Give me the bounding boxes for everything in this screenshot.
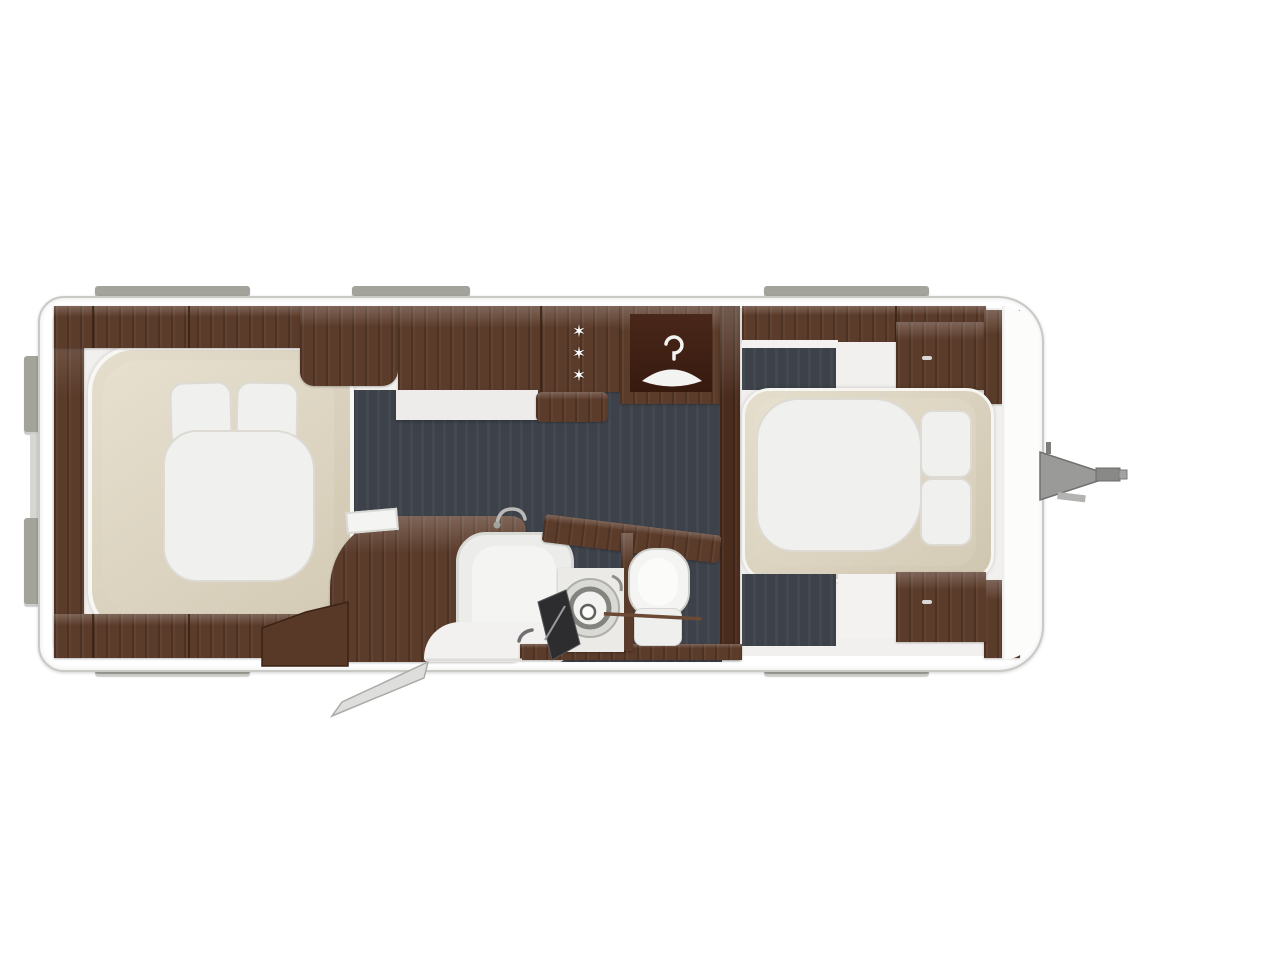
front-bed-pillow-top (920, 410, 972, 478)
cabinet-divider (188, 306, 190, 348)
toilet-base (634, 608, 682, 646)
kitchen-worktop-shelf (396, 390, 538, 420)
chest-handle (922, 356, 932, 360)
caravan-floor-plan: ✶ ✶ ✶ (0, 0, 1280, 960)
freezer-star-icon: ✶ (572, 322, 586, 342)
freezer-star-icon: ✶ (572, 344, 586, 364)
cabinet-divider (540, 306, 542, 392)
kitchen-sink-cover (345, 508, 399, 534)
front-floor-top (742, 348, 836, 390)
rear-bed-duvet (163, 430, 315, 582)
front-bed-duvet (756, 398, 922, 552)
toilet-lid (638, 558, 678, 606)
cabinet-divider (92, 614, 94, 658)
front-chest-bottom (896, 572, 986, 642)
freezer-star-icon: ✶ (572, 366, 586, 386)
front-white-pillar (838, 574, 896, 638)
partition-wall (720, 306, 740, 660)
front-chest-top (896, 322, 986, 390)
kitchen-shelf-block (536, 392, 608, 422)
wardrobe-interior (630, 314, 712, 392)
cabinet-divider (188, 614, 190, 658)
front-wall-arc (1002, 306, 1038, 660)
front-bed-pillow-bottom (920, 478, 972, 546)
cabinet-divider (92, 306, 94, 348)
fridge-freezer-stars: ✶ ✶ ✶ (564, 322, 594, 386)
front-floor-bottom (742, 574, 836, 646)
rear-wardrobe-side (54, 306, 84, 656)
bedhead-corner-cabinet (300, 306, 398, 386)
tow-hitch (1040, 442, 1127, 502)
sink-base (558, 568, 624, 652)
front-white-mid (836, 342, 896, 390)
chest-handle (922, 600, 932, 604)
